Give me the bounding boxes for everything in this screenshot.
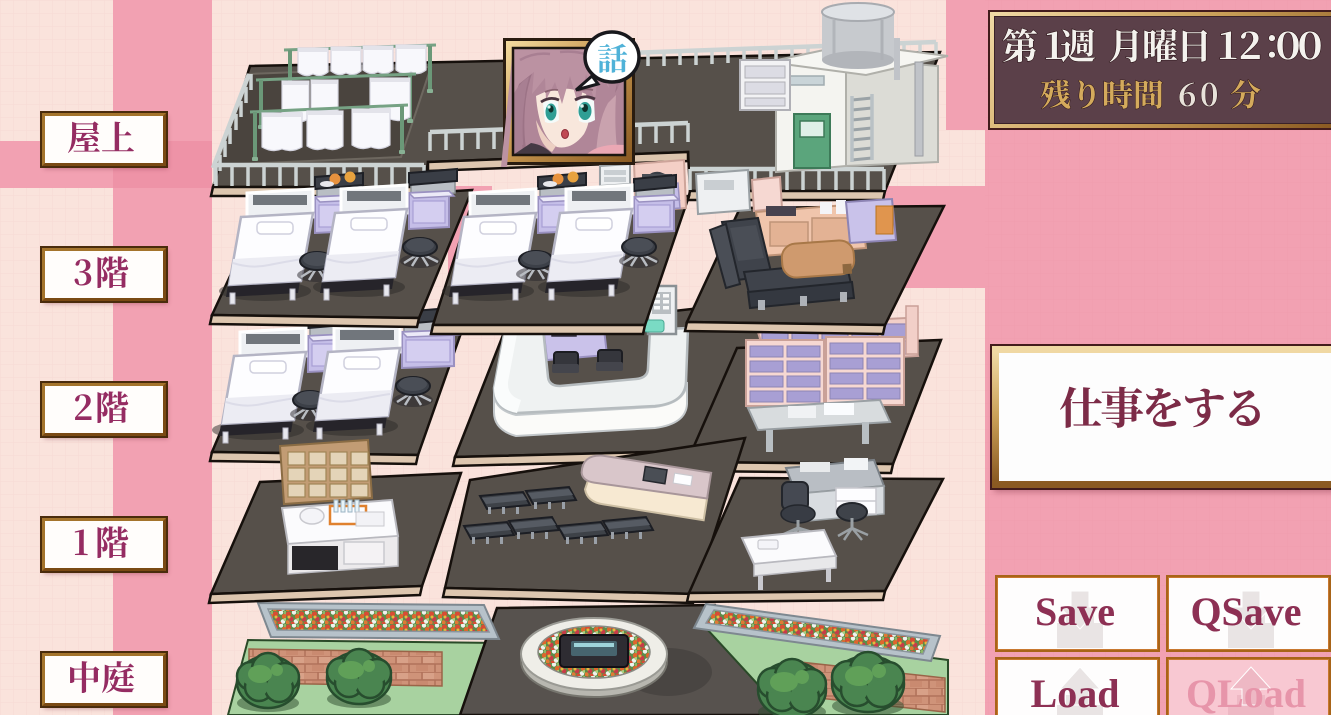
svg-text:Load: Load bbox=[1031, 671, 1120, 715]
svg-text:QLoad: QLoad bbox=[1186, 671, 1306, 715]
svg-text:QSave: QSave bbox=[1190, 589, 1301, 634]
svg-text:Save: Save bbox=[1035, 589, 1115, 634]
